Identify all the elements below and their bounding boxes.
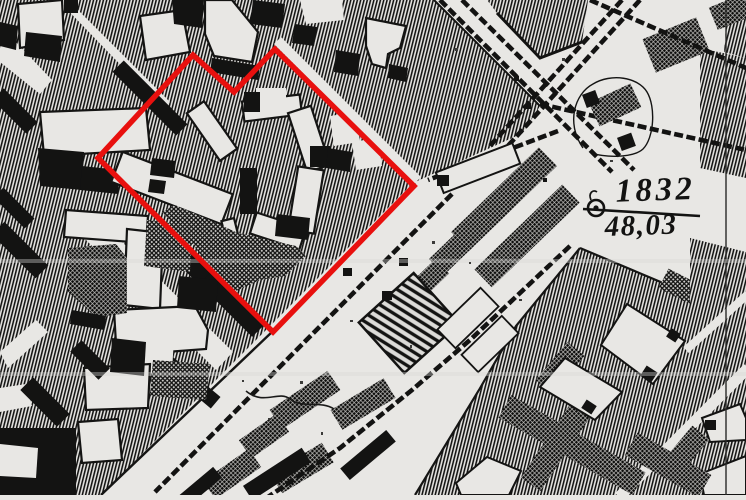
svg-text:48,03: 48,03 [603,208,678,243]
svg-text:1832: 1832 [615,171,696,210]
